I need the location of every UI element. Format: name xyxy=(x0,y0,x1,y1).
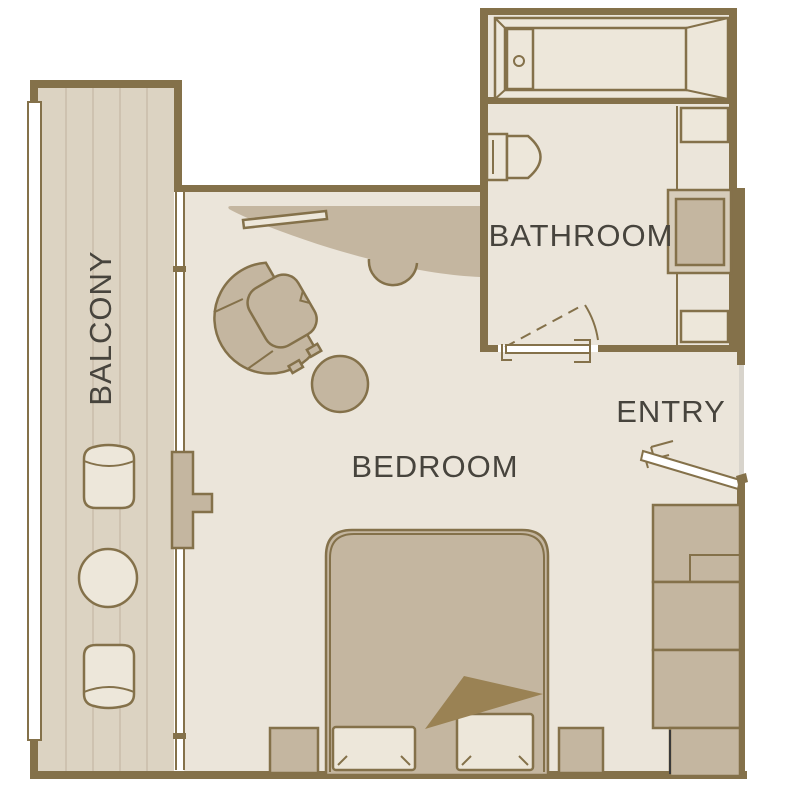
exterior-right-wall-upper xyxy=(737,188,745,365)
entry-label: ENTRY xyxy=(616,394,726,430)
bathroom-right-wall xyxy=(729,8,737,352)
vanity-bottom-cabinet xyxy=(681,311,728,342)
balcony-right-wall xyxy=(174,80,182,192)
vanity-top-cabinet xyxy=(681,108,728,142)
bathroom-bottom-wall-right xyxy=(598,345,737,352)
balcony-railing xyxy=(28,102,41,740)
sink-unit xyxy=(676,199,724,265)
bathtub xyxy=(495,18,728,99)
toilet xyxy=(487,134,541,180)
pillow-left xyxy=(333,727,415,770)
bedroom-label: BEDROOM xyxy=(351,449,518,485)
entry-doorway-gap xyxy=(739,365,744,482)
stateroom-floorplan: BALCONY BATHROOM BEDROOM ENTRY xyxy=(0,0,792,794)
pillow-right xyxy=(457,714,533,770)
ottoman xyxy=(312,356,368,412)
balcony-table xyxy=(79,549,137,607)
balcony-top-wall xyxy=(30,80,182,88)
balcony-label: BALCONY xyxy=(83,250,119,405)
balcony-chair-bottom xyxy=(84,645,134,708)
bathtub-top-wall xyxy=(480,8,737,15)
nightstand-left xyxy=(270,728,318,773)
bed xyxy=(326,530,548,775)
bedroom-top-wall xyxy=(174,185,488,192)
balcony-chair-top xyxy=(84,445,134,508)
bathroom-label: BATHROOM xyxy=(489,218,674,254)
bathroom-bottom-wall-left-stub xyxy=(480,345,498,352)
nightstand-right xyxy=(559,728,603,773)
